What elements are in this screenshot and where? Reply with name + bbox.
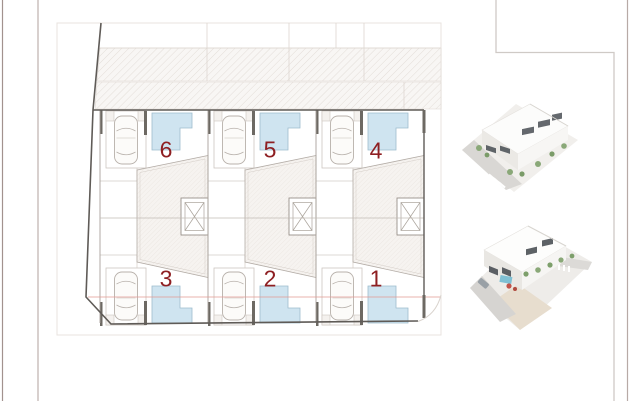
architectural-plan-page: 6 5 4 3 2 1 — [0, 0, 630, 401]
unit-number-5: 5 — [264, 139, 277, 162]
street-hatch-band — [95, 23, 441, 109]
unit-number-4: 4 — [370, 140, 383, 163]
unit-number-2: 2 — [264, 268, 277, 291]
aerial-render-rear — [470, 226, 592, 330]
unit-number-1: 1 — [370, 268, 383, 291]
curb-curve — [418, 295, 441, 322]
unit-number-3: 3 — [160, 268, 173, 291]
unit-number-6: 6 — [160, 139, 173, 162]
aerial-render-front — [462, 104, 578, 192]
site-plan-drawing — [0, 0, 630, 401]
